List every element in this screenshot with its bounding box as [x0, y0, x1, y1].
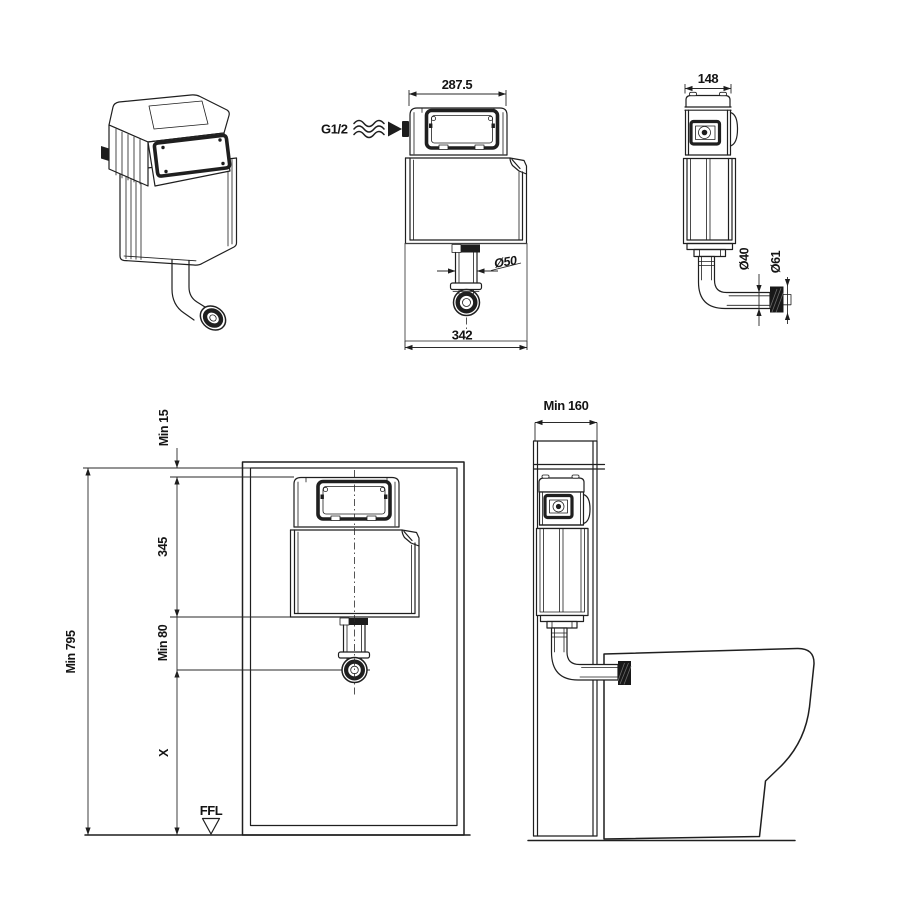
pipe-end-flange	[196, 301, 231, 335]
screw-icon	[161, 146, 164, 149]
outlet-pipe-inner	[459, 253, 474, 284]
body-side-edges	[406, 158, 527, 244]
outlet-seal-left	[340, 618, 349, 625]
cistern-3d-view	[101, 95, 237, 335]
installation-front-view: Min 795 Min 15 345 Min 80 X FFL	[64, 409, 470, 835]
inlet-tab	[402, 121, 409, 137]
side-fitting-dot	[556, 504, 561, 509]
wall-ledge	[534, 465, 605, 470]
side-flange-step	[547, 622, 577, 629]
front-view: 287.5 G1/2	[321, 77, 527, 350]
side-bulge	[584, 495, 591, 524]
lower-body	[537, 529, 589, 616]
side-bulge	[731, 113, 738, 147]
outlet-ring-inner	[463, 299, 471, 307]
outlet-seal-left	[452, 245, 461, 253]
dim-pipe-diameter: Ø40	[738, 247, 762, 326]
dim-floor-offset-label: X	[157, 748, 171, 757]
screw-icon	[218, 138, 221, 141]
dim-width-bottom: 342	[405, 328, 527, 351]
inlet-tab	[101, 146, 109, 161]
step-lines	[291, 527, 403, 530]
side-body-edges	[684, 159, 736, 244]
pipe-connector	[618, 661, 631, 685]
dim-connector-diameter-label: Ø61	[769, 250, 783, 273]
arrow-right-icon	[388, 122, 402, 137]
body-corner-notch	[510, 158, 527, 174]
dim-depth-label: 148	[698, 71, 719, 86]
cap-clip	[720, 92, 727, 95]
wall-frame-inner	[251, 468, 458, 826]
screw-icon	[164, 170, 167, 173]
outlet-seal	[461, 245, 480, 253]
cap-clip	[542, 475, 549, 478]
dim-min-outlet-height: Min 80	[156, 617, 370, 678]
frame-tab	[331, 516, 340, 521]
body-corner-notch	[402, 530, 419, 546]
cistern-side-cap	[539, 478, 584, 492]
side-step-lines	[684, 155, 736, 159]
cap-lines	[685, 107, 731, 110]
dim-depth: 148	[685, 71, 731, 94]
side-fitting-dot	[702, 130, 708, 136]
dim-min-depth: Min 160	[535, 398, 597, 441]
toilet-pan	[604, 648, 814, 839]
dim-pipe-diameter-label: Ø40	[738, 247, 752, 270]
side-flange-ticks	[700, 250, 721, 257]
outlet-flange	[451, 283, 482, 290]
frame-tab	[439, 145, 448, 150]
water-supply-icon	[354, 121, 384, 138]
dim-width-top: 287.5	[409, 77, 506, 106]
frame-notch	[321, 495, 324, 500]
dim-width-bottom-label: 342	[452, 328, 473, 343]
installation-side-view: Min 160	[528, 398, 814, 841]
cistern-technical-drawing: 287.5 G1/2	[0, 0, 900, 900]
inlet-label: G1/2	[321, 122, 348, 137]
dim-min-depth-label: Min 160	[544, 398, 589, 413]
outlet-ring	[458, 294, 476, 312]
dim-width-top-label: 287.5	[442, 77, 473, 92]
cap-clip	[572, 475, 579, 478]
side-flange	[541, 616, 584, 622]
dim-cistern-height-label: 345	[156, 537, 170, 557]
frame-notch	[384, 495, 387, 500]
pipe-inner-edge	[189, 261, 205, 308]
floor-level-label: FFL	[200, 803, 223, 818]
access-frame	[427, 111, 498, 149]
frame-notch	[492, 124, 495, 129]
body-side-ribs	[414, 160, 520, 240]
dim-min-overall-height-label: Min 795	[64, 630, 78, 673]
dim-min-top-clearance-label: Min 15	[157, 409, 171, 446]
screw-icon	[221, 162, 224, 165]
dim-min-outlet-height-label: Min 80	[156, 624, 170, 661]
installed-cistern-front	[291, 470, 420, 697]
floor-level-marker: FFL	[200, 803, 223, 834]
frame-tab	[475, 145, 484, 150]
body-bottom-lines	[406, 240, 527, 244]
dim-outlet-diameter-label: Ø50	[493, 253, 518, 270]
cistern-side-cap	[686, 96, 730, 108]
dim-min-top-clearance: Min 15	[157, 409, 180, 468]
frame-tab	[367, 516, 376, 521]
access-frame	[318, 482, 390, 520]
level-triangle-icon	[203, 819, 220, 835]
dim-outlet-diameter: Ø50	[437, 253, 521, 273]
pipe-outer-edge	[172, 260, 194, 320]
inlet-callout: G1/2	[321, 121, 409, 138]
side-body-ribs	[691, 159, 711, 241]
frame-notch	[429, 124, 432, 129]
dim-floor-offset: X	[157, 670, 180, 835]
side-flange	[687, 244, 733, 250]
cap-clip	[690, 92, 697, 95]
outlet-seal	[349, 618, 368, 625]
technical-drawing-page: 287.5 G1/2	[0, 0, 900, 900]
side-view: 148 Ø40	[684, 71, 792, 326]
